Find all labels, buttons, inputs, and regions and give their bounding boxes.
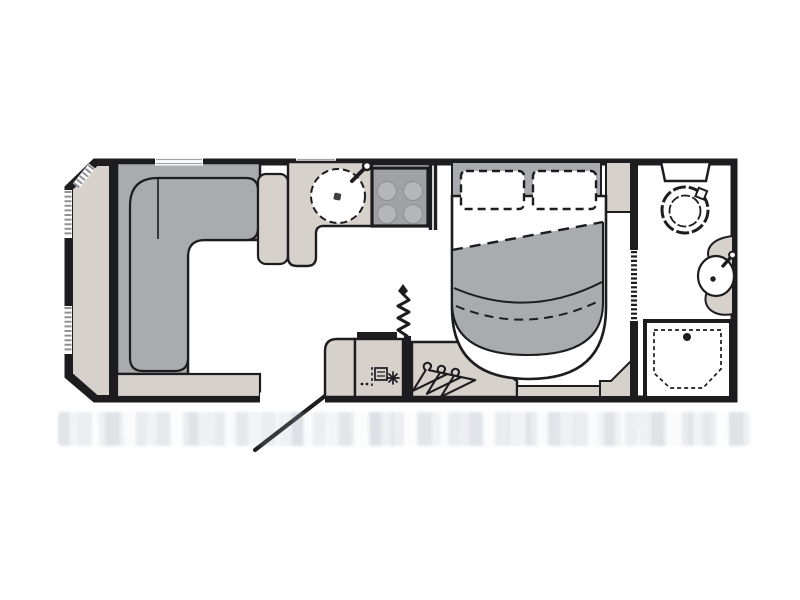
- toilet-cistern: [661, 162, 710, 181]
- side-step: [117, 374, 260, 397]
- shower: [645, 321, 731, 398]
- fridge-dot-2: [366, 383, 369, 386]
- fridge-dot-1: [361, 383, 364, 386]
- sink-drain: [333, 192, 341, 200]
- basin-tap-head: [729, 252, 736, 259]
- floorplan-canvas: [0, 0, 800, 600]
- sofa-end-table: [258, 174, 288, 264]
- scan-artifact-band: [58, 412, 750, 446]
- front-chest: [72, 165, 110, 396]
- scanned-floorplan-page: [0, 0, 800, 600]
- bathroom-wall-upper: [630, 161, 638, 250]
- sink-tap-head: [363, 162, 371, 170]
- bathroom-wall-lower: [630, 321, 638, 399]
- bed-foot-strip: [517, 386, 602, 397]
- shower-tray: [645, 321, 731, 398]
- top-window-gap-1: [155, 158, 203, 166]
- pillow-right: [533, 171, 596, 209]
- shower-drain: [683, 333, 691, 341]
- toilet: [661, 162, 710, 233]
- base-unit: [325, 339, 355, 397]
- toilet-hinge: [695, 188, 707, 200]
- snowflake-icon: [387, 372, 399, 384]
- fridge-vent-cap: [357, 332, 397, 339]
- basin-drain: [710, 276, 715, 281]
- pillow-left: [461, 171, 524, 209]
- utility-wall: [404, 336, 411, 397]
